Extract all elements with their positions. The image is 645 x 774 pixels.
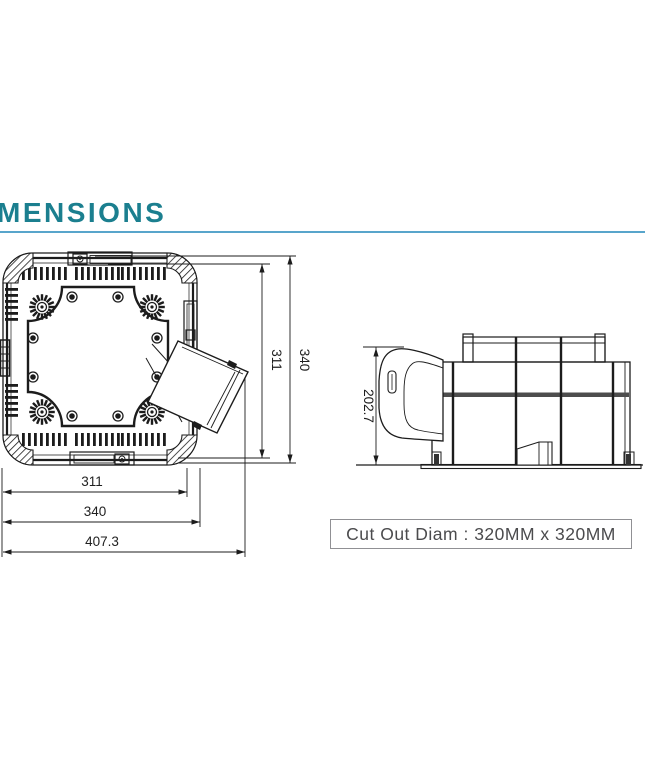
impeller-icons <box>29 294 165 425</box>
top-view-drawing: 311 340 311 340 407.3 <box>1 252 313 557</box>
title-underline <box>0 231 645 233</box>
dim-label-width-overall: 407.3 <box>85 534 119 549</box>
dim-label-width-inner: 311 <box>81 474 103 489</box>
dim-label-height-inner: 311 <box>269 349 284 371</box>
dim-label-side-height: 202.7 <box>361 389 376 423</box>
cutout-note-box: Cut Out Diam : 320MM x 320MM <box>330 519 632 549</box>
side-view-duct <box>379 349 443 441</box>
page-title: MENSIONS <box>0 197 166 229</box>
dim-label-width-outer: 340 <box>84 504 107 519</box>
dimension-arrows <box>3 256 293 555</box>
dim-label-height-outer: 340 <box>297 349 312 372</box>
dimensions-diagram: 311 340 311 340 407.3 <box>0 240 645 560</box>
dimensions-page: MENSIONS <box>0 0 645 774</box>
side-view-drawing: 202.7 <box>356 334 643 469</box>
duct-spigot <box>146 341 248 433</box>
cutout-note-text: Cut Out Diam : 320MM x 320MM <box>346 524 616 545</box>
